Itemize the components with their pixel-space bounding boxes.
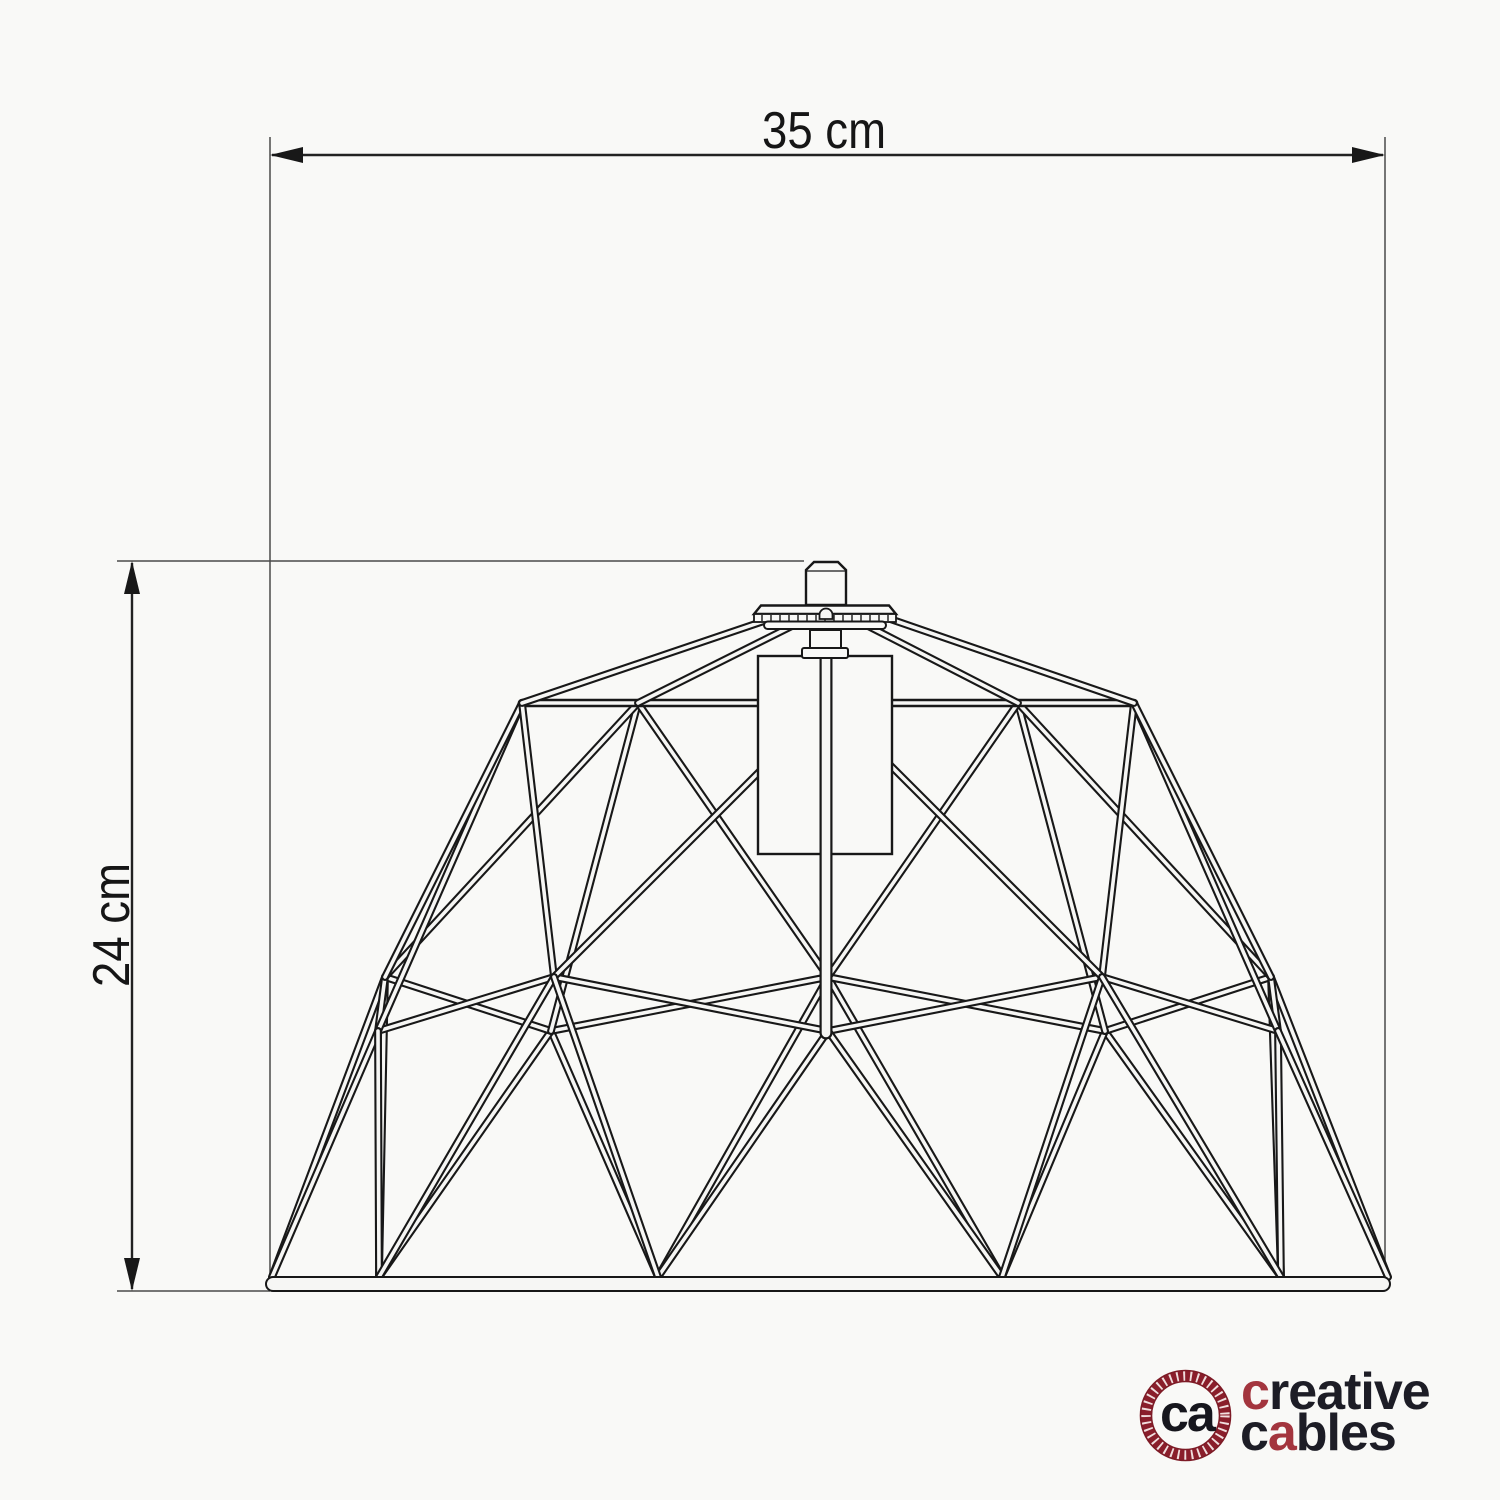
svg-text:ca: ca (1160, 1385, 1217, 1443)
svg-text:a: a (1268, 1404, 1298, 1462)
svg-text:c: c (1240, 1404, 1268, 1462)
svg-text:24 cm: 24 cm (83, 863, 141, 987)
svg-text:bles: bles (1296, 1404, 1396, 1462)
svg-text:35 cm: 35 cm (762, 102, 886, 160)
